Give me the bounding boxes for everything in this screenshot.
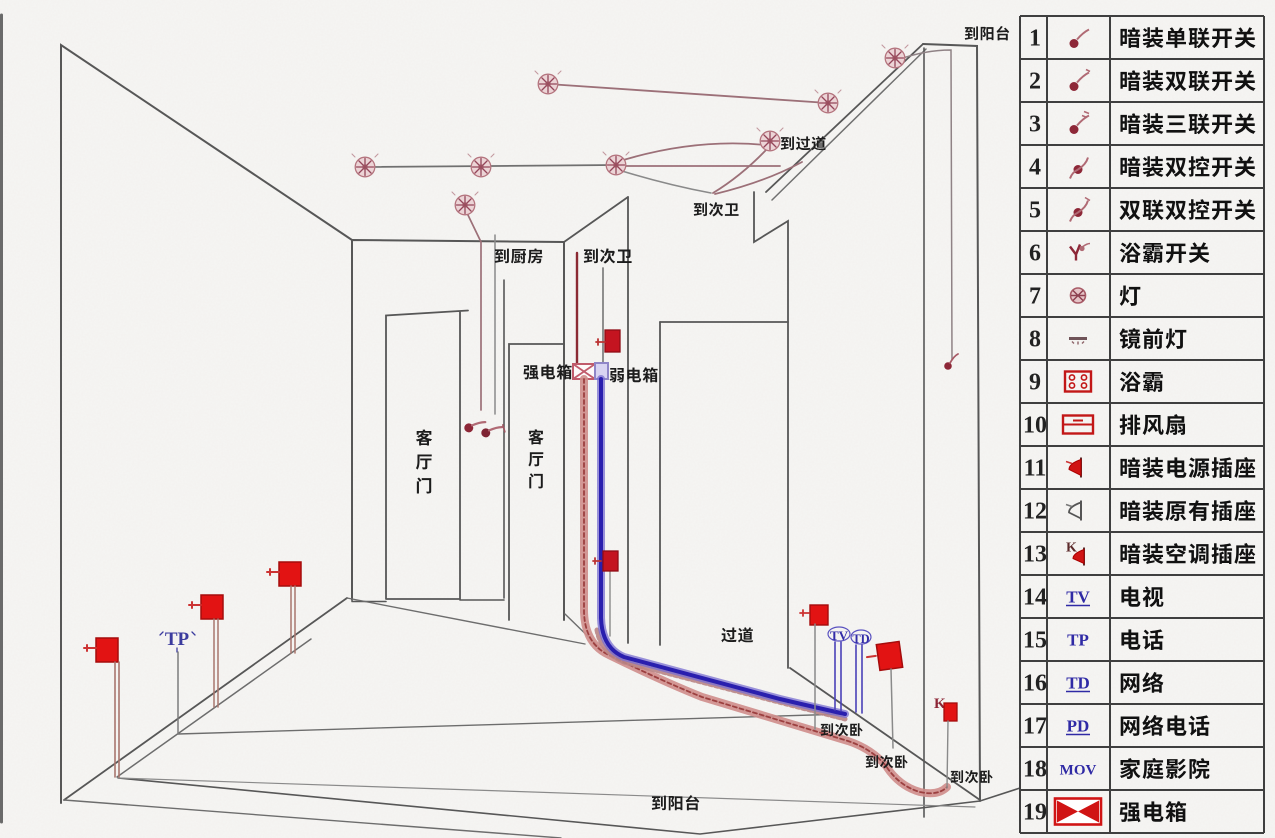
svg-text:6: 6 (1029, 241, 1041, 267)
svg-text:14: 14 (1023, 585, 1047, 611)
svg-text:8: 8 (1029, 327, 1041, 353)
svg-text:2: 2 (1029, 69, 1041, 95)
svg-text:10: 10 (1023, 413, 1047, 439)
svg-text:15: 15 (1023, 628, 1047, 654)
svg-text:7: 7 (1029, 284, 1041, 310)
svg-text:9: 9 (1029, 370, 1041, 396)
svg-text:13: 13 (1023, 542, 1047, 568)
svg-text:19: 19 (1023, 800, 1047, 826)
svg-text:12: 12 (1023, 499, 1047, 525)
svg-text:16: 16 (1023, 671, 1047, 697)
svg-text:TV: TV (830, 628, 849, 643)
svg-text:17: 17 (1023, 714, 1047, 740)
svg-text:18: 18 (1023, 757, 1047, 783)
svg-text:K: K (1066, 541, 1077, 556)
svg-text:PD: PD (1067, 717, 1090, 736)
svg-text:5: 5 (1029, 198, 1041, 224)
svg-text:TV: TV (1066, 588, 1090, 607)
svg-text:1: 1 (1029, 26, 1041, 52)
svg-text:TP: TP (1067, 631, 1089, 650)
svg-text:3: 3 (1029, 112, 1041, 138)
svg-text:11: 11 (1024, 456, 1047, 482)
svg-text:MOV: MOV (1060, 763, 1097, 779)
svg-text:TD: TD (1066, 674, 1090, 693)
svg-text:TP: TP (165, 629, 190, 650)
svg-text:4: 4 (1029, 155, 1041, 181)
svg-text:TD: TD (852, 632, 869, 646)
